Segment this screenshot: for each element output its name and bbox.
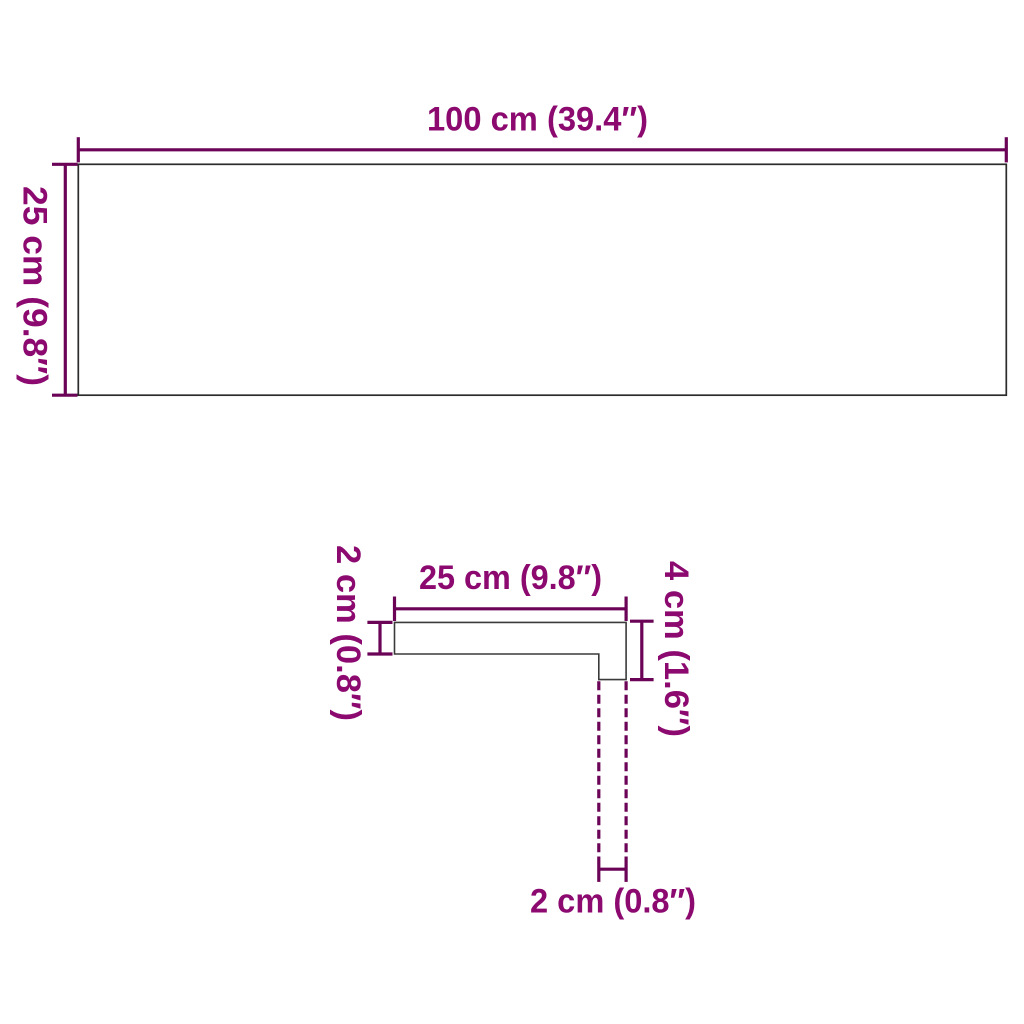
- svg-text:100 cm (39.4″): 100 cm (39.4″): [427, 100, 648, 138]
- svg-text:2 cm (0.8″): 2 cm (0.8″): [530, 883, 696, 921]
- svg-text:25 cm (9.8″): 25 cm (9.8″): [419, 559, 602, 597]
- svg-text:2 cm (0.8″): 2 cm (0.8″): [329, 545, 367, 721]
- svg-text:4 cm (1.6″): 4 cm (1.6″): [657, 561, 695, 737]
- svg-text:25 cm (9.8″): 25 cm (9.8″): [16, 186, 54, 386]
